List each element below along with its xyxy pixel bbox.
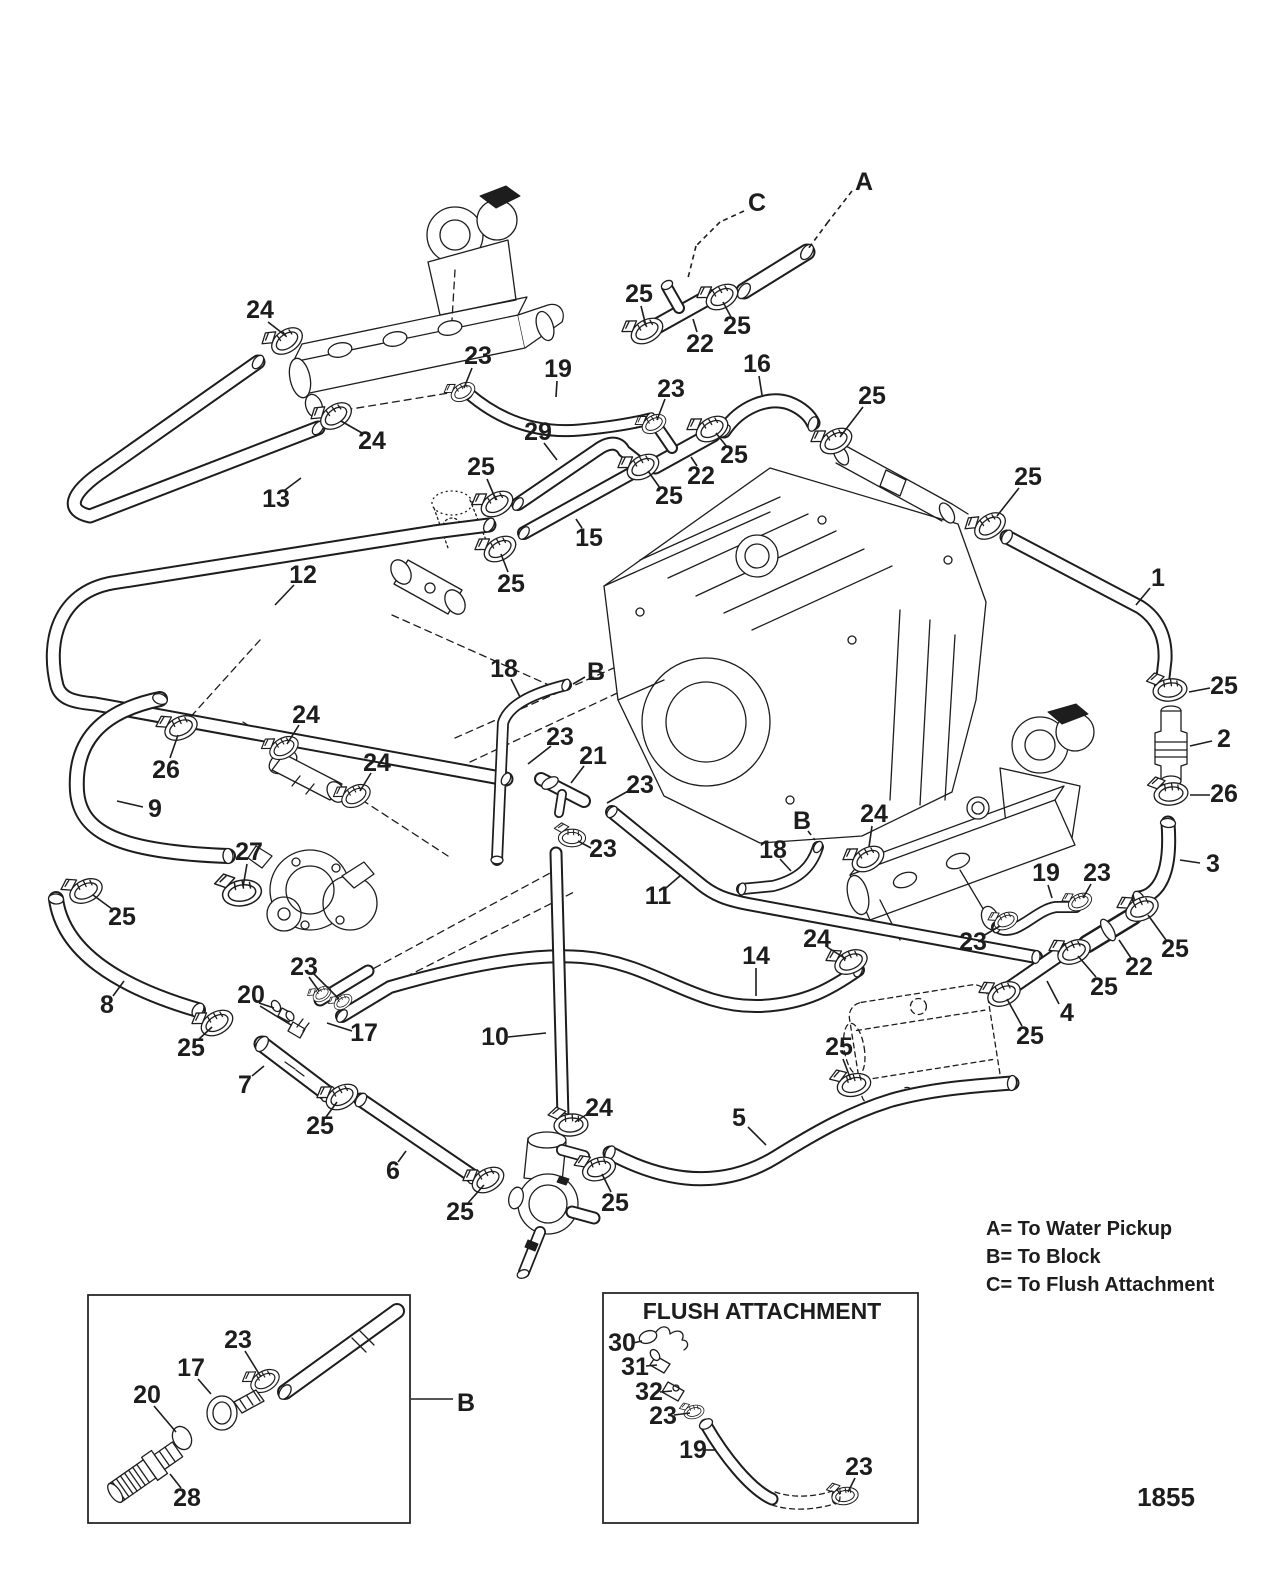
callout-label-B-71: B: [457, 1389, 475, 1417]
flush-box-title: FLUSH ATTACHMENT: [643, 1298, 881, 1324]
flush-fitting-31: [648, 1348, 670, 1373]
hose-water-pickup: [744, 252, 807, 291]
callout-leader-C: [688, 246, 696, 278]
hose-1: [1007, 537, 1165, 686]
hose-clamp-icon: [826, 1479, 860, 1507]
callout-label-23-2: 23: [464, 342, 492, 370]
callout-label-20-69: 20: [133, 1381, 161, 1409]
callout-leader-16: [759, 376, 762, 395]
callout-leader-A: [828, 191, 852, 222]
callout-label-31-73: 31: [621, 1353, 649, 1381]
callout-leader-25: [1189, 688, 1210, 692]
callout-leader-2: [1190, 741, 1212, 746]
callout-leader-25: [997, 488, 1019, 516]
cooling-system-diagram: FLUSH ATTACHMENT A= To Water Pickup B= T…: [0, 0, 1280, 1580]
hose-16: [724, 401, 813, 431]
callout-label-28-70: 28: [173, 1484, 201, 1512]
callout-label-25-16: 25: [720, 441, 748, 469]
callout-label-5-41: 5: [732, 1104, 746, 1132]
hose-5: [610, 1083, 1012, 1179]
callout-label-25-23: 25: [1210, 672, 1238, 700]
callout-label-25-38: 25: [1016, 1022, 1044, 1050]
callout-label-25-51: 25: [446, 1198, 474, 1226]
hose-14: [342, 956, 858, 1016]
callout-label-15-19: 15: [575, 524, 603, 552]
hose-clamp-icon: [459, 1155, 508, 1200]
callout-label-22-17: 22: [687, 462, 715, 490]
tube-10: [556, 853, 563, 1117]
callout-label-21-46: 21: [579, 742, 607, 770]
callout-leader-A: [808, 222, 828, 249]
callout-label-23-75: 23: [649, 1402, 677, 1430]
hose-clamp-icon: [239, 1359, 283, 1400]
callout-label-24-1: 24: [358, 427, 386, 455]
callout-label-24-62: 24: [292, 701, 320, 729]
callout-label-9-61: 9: [148, 795, 162, 823]
callout-label-23-64: 23: [290, 953, 318, 981]
callout-label-6-53: 6: [386, 1157, 400, 1185]
flush-cap-30: [637, 1327, 687, 1350]
callout-label-16-14: 16: [743, 350, 771, 378]
callout-label-25-39: 25: [825, 1033, 853, 1061]
callout-label-18-29: 18: [759, 836, 787, 864]
callout-leader-C: [720, 211, 744, 222]
coupler-22-right: [1087, 916, 1133, 944]
quick-connect-fittings: [270, 999, 309, 1038]
callout-label-23-48: 23: [589, 835, 617, 863]
callout-label-25-21: 25: [1014, 463, 1042, 491]
callout-leader-10: [508, 1033, 546, 1037]
hose-6: [361, 1100, 474, 1177]
legend-item-a: A= To Water Pickup: [986, 1218, 1172, 1240]
callout-label-19-76: 19: [679, 1436, 707, 1464]
tube-7: [262, 1044, 328, 1094]
callout-label-3-26: 3: [1206, 850, 1220, 878]
callout-label-23-67: 23: [224, 1326, 252, 1354]
callout-label-23-77: 23: [845, 1453, 873, 1481]
callout-label-22-12: 22: [686, 330, 714, 358]
exhaust-manifold-left: [286, 186, 563, 420]
callout-leader-4: [1047, 981, 1059, 1004]
callout-label-25-35: 25: [1161, 935, 1189, 963]
tee-fitting-22-top: [657, 279, 709, 326]
callout-label-23-45: 23: [546, 723, 574, 751]
callout-label-20-65: 20: [237, 981, 265, 1009]
callout-label-A-10: A: [855, 168, 873, 196]
parts-diagram-page: FLUSH ATTACHMENT A= To Water Pickup B= T…: [0, 0, 1280, 1580]
callout-label-19-3: 19: [544, 355, 572, 383]
inset-b-fitting-17: [207, 1390, 264, 1430]
hose-clamp-icon: [468, 479, 517, 524]
thermostat-housing: [506, 1132, 594, 1280]
callout-label-25-52: 25: [601, 1189, 629, 1217]
callout-label-C-9: C: [748, 189, 766, 217]
hose-clamp-icon: [678, 1398, 705, 1421]
callout-label-25-18: 25: [655, 482, 683, 510]
callout-label-29-4: 29: [524, 418, 552, 446]
callout-label-26-60: 26: [152, 756, 180, 784]
legend-item-b: B= To Block: [986, 1246, 1102, 1268]
pump-assembly-top: [387, 491, 486, 618]
callout-label-12-8: 12: [289, 561, 317, 589]
callout-label-25-20: 25: [858, 382, 886, 410]
page-number: 1855: [1137, 1482, 1195, 1512]
callout-leader-C: [696, 222, 720, 246]
callout-label-24-27: 24: [860, 800, 888, 828]
callout-leader-25: [840, 407, 863, 437]
callout-leader-9: [117, 801, 143, 807]
callout-label-26-25: 26: [1210, 780, 1238, 808]
callout-label-14-40: 14: [742, 942, 770, 970]
callout-label-B-28: B: [793, 807, 811, 835]
callout-label-24-30: 24: [803, 925, 831, 953]
hose-clamp-icon: [213, 868, 263, 910]
callout-label-25-11: 25: [625, 280, 653, 308]
callout-label-25-6: 25: [497, 570, 525, 598]
legend: A= To Water Pickup B= To Block C= To Flu…: [986, 1218, 1215, 1296]
callout-leader-3: [1180, 860, 1200, 863]
callout-label-11-42: 11: [645, 882, 672, 910]
hose-19-top: [468, 393, 650, 431]
callout-label-25-36: 25: [1090, 973, 1118, 1001]
callout-label-25-57: 25: [177, 1034, 205, 1062]
hose-3: [1139, 823, 1169, 898]
callout-label-7-55: 7: [238, 1071, 252, 1099]
callout-label-24-0: 24: [246, 296, 274, 324]
callout-label-24-50: 24: [585, 1094, 613, 1122]
callout-leader-19: [556, 381, 557, 397]
callout-label-B-44: B: [587, 658, 605, 686]
callout-label-25-13: 25: [723, 312, 751, 340]
callout-leader-5: [748, 1127, 766, 1145]
callout-label-1-22: 1: [1151, 564, 1165, 592]
callout-label-23-33: 23: [959, 928, 987, 956]
callout-leader-20: [154, 1406, 176, 1432]
callout-leader-7: [252, 1066, 264, 1076]
callout-label-17-66: 17: [350, 1019, 378, 1047]
quick-connect-2: [1155, 706, 1187, 786]
callout-label-23-32: 23: [1083, 859, 1111, 887]
callout-label-17-68: 17: [177, 1354, 205, 1382]
callout-label-4-37: 4: [1060, 999, 1074, 1027]
callout-label-27-59: 27: [235, 838, 263, 866]
callout-label-25-58: 25: [108, 903, 136, 931]
projection-lines: [186, 392, 658, 1004]
hose-clamp-icon: [58, 867, 106, 911]
callout-label-10-49: 10: [481, 1023, 509, 1051]
callout-label-23-47: 23: [626, 771, 654, 799]
engine-block: [604, 468, 986, 843]
legend-item-c: C= To Flush Attachment: [986, 1274, 1215, 1296]
callout-label-24-63: 24: [363, 749, 391, 777]
water-pump: [248, 846, 377, 931]
callout-label-19-31: 19: [1032, 859, 1060, 887]
callout-label-8-56: 8: [100, 991, 114, 1019]
fitting-21: [540, 774, 584, 813]
callout-label-13-7: 13: [262, 485, 290, 513]
callout-label-22-34: 22: [1125, 953, 1153, 981]
callout-label-25-54: 25: [306, 1112, 334, 1140]
callout-label-25-5: 25: [467, 453, 495, 481]
hoses: [53, 252, 1168, 1179]
callout-leader-17: [327, 1023, 352, 1031]
callout-label-18-43: 18: [490, 655, 518, 683]
callout-label-23-15: 23: [657, 375, 685, 403]
inset-b-hose: [276, 1311, 397, 1401]
callout-label-2-24: 2: [1217, 725, 1231, 753]
flush-hose-19: [698, 1417, 840, 1510]
